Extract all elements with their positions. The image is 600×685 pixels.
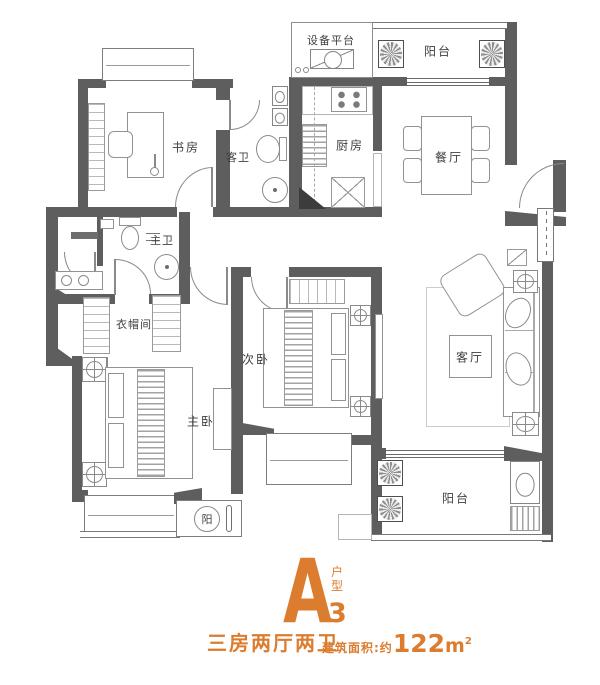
pillow-icon <box>108 373 124 418</box>
tv-cabinet-icon <box>375 314 383 399</box>
plan-type-label: 户型 <box>331 566 345 594</box>
wardrobe-icon <box>83 297 110 354</box>
bed-runner-icon <box>284 310 313 406</box>
toilet-icon <box>279 137 287 161</box>
door-arc <box>190 267 228 305</box>
basin-drain-icon <box>273 188 277 192</box>
room-label-living-room: 客厅 <box>456 349 484 366</box>
area-label: 建筑面积:约 <box>322 639 393 656</box>
bookshelf-icon <box>88 103 105 191</box>
ledge <box>338 514 372 540</box>
wall <box>504 446 544 461</box>
dresser-icon <box>213 388 232 450</box>
chair-icon <box>403 158 422 183</box>
cistern-icon <box>100 219 114 229</box>
door-arc <box>175 167 213 207</box>
pass-counter <box>373 153 382 207</box>
toilet-icon <box>121 226 139 250</box>
pillow-icon <box>331 313 346 355</box>
sink-icon <box>61 275 72 286</box>
wall <box>289 267 382 277</box>
area-info: 建筑面积:约 122 m 2 <box>322 631 472 657</box>
wall-corner <box>299 187 326 209</box>
room-label-study: 书房 <box>172 139 200 156</box>
layout-name: 三房两厅两卫 <box>207 633 339 653</box>
door-leaf <box>211 167 213 207</box>
chair-icon <box>471 158 490 183</box>
toilet-icon <box>119 217 141 226</box>
sliding-door-window <box>386 450 506 458</box>
washer-icon <box>272 86 288 106</box>
floor-plan: 书房 客卫 设备平台 阳台 厨房 餐厅 主卫 衣帽间 次卧 主卧 客厅 阳台 阳… <box>0 0 600 685</box>
window <box>407 78 491 86</box>
end-table-icon <box>513 270 538 293</box>
duct-shaft <box>537 208 554 262</box>
pillow-icon <box>331 359 346 401</box>
basin-drain-icon <box>165 265 169 269</box>
plan-number: 3 <box>328 600 347 627</box>
room-label-equipment-platform: 设备平台 <box>307 32 355 48</box>
plant-icon <box>378 40 404 68</box>
wall <box>505 211 566 226</box>
side-table-icon <box>507 249 527 266</box>
plan-letter: A <box>283 556 332 628</box>
wall <box>350 435 382 445</box>
vent-dot-icon <box>303 67 309 73</box>
wall <box>216 79 230 100</box>
wall <box>78 79 88 217</box>
wall <box>231 267 251 277</box>
handle-icon <box>226 505 232 532</box>
area-unit: m <box>445 635 465 657</box>
door-arc <box>115 259 151 294</box>
door-leaf <box>229 100 231 130</box>
nightstand-icon <box>350 305 371 326</box>
end-table-icon <box>512 412 539 436</box>
wardrobe-icon <box>289 279 345 304</box>
wardrobe-icon <box>152 295 181 352</box>
room-label-master-bedroom: 主卧 <box>187 413 215 430</box>
pillow-icon <box>108 423 124 468</box>
room-label-sun-nook: 阳 <box>202 511 213 527</box>
wall <box>505 22 517 165</box>
entry-door-arc <box>519 163 564 208</box>
wall <box>46 207 177 217</box>
room-label-guest-bath: 客卫 <box>226 149 250 165</box>
wall <box>371 448 386 459</box>
toilet-icon <box>256 135 280 163</box>
nightstand-icon <box>82 357 107 382</box>
lamp-icon <box>154 154 156 168</box>
sink-icon <box>78 275 89 286</box>
washer-icon <box>510 461 540 504</box>
sink-icon <box>331 177 365 208</box>
sofa-back <box>533 290 535 414</box>
bay-window <box>84 495 178 533</box>
area-value: 122 <box>393 631 445 656</box>
wall <box>489 77 507 86</box>
room-label-second-bedroom: 次卧 <box>242 351 270 368</box>
chair-icon <box>471 126 490 151</box>
wall <box>216 130 230 217</box>
balcony-rail <box>373 22 507 29</box>
room-label-dining: 餐厅 <box>435 149 463 166</box>
nightstand-icon <box>82 462 107 487</box>
sofa-cushion-line <box>505 330 533 331</box>
room-label-balcony-bottom: 阳台 <box>442 490 470 507</box>
door-leaf <box>114 259 116 295</box>
room-label-master-bath: 主卫 <box>150 232 174 248</box>
chair-icon <box>403 126 422 151</box>
plant-icon <box>377 496 403 522</box>
towel-bar-icon <box>71 232 98 239</box>
fan-icon <box>310 49 354 69</box>
balcony-rail <box>80 531 180 538</box>
wall <box>373 85 382 151</box>
lamp-icon <box>150 167 159 176</box>
bay-window <box>102 48 194 81</box>
wall <box>542 224 553 542</box>
wall <box>373 77 407 86</box>
vent-dot-icon <box>295 67 301 73</box>
wall <box>231 267 243 494</box>
washer-icon <box>272 108 288 126</box>
wall <box>179 212 190 304</box>
nightstand-icon <box>350 396 371 417</box>
wall <box>289 77 375 86</box>
plant-icon <box>377 460 403 486</box>
chair-icon <box>108 131 133 158</box>
balcony-rail <box>371 534 551 541</box>
room-label-balcony-top: 阳台 <box>424 43 452 60</box>
room-label-cloakroom: 衣帽间 <box>116 316 152 332</box>
door-leaf <box>226 267 228 305</box>
room-label-kitchen: 厨房 <box>336 137 364 154</box>
bed-runner-icon <box>137 369 165 477</box>
stove-icon <box>331 87 367 112</box>
plant-icon <box>479 40 505 68</box>
wall <box>72 356 82 496</box>
door-arc <box>230 100 260 130</box>
vent-dash-line <box>314 87 315 207</box>
bay-window <box>266 433 352 485</box>
area-exponent: 2 <box>465 636 472 647</box>
laundry-cabinet-icon <box>510 506 540 531</box>
wall <box>213 207 382 217</box>
